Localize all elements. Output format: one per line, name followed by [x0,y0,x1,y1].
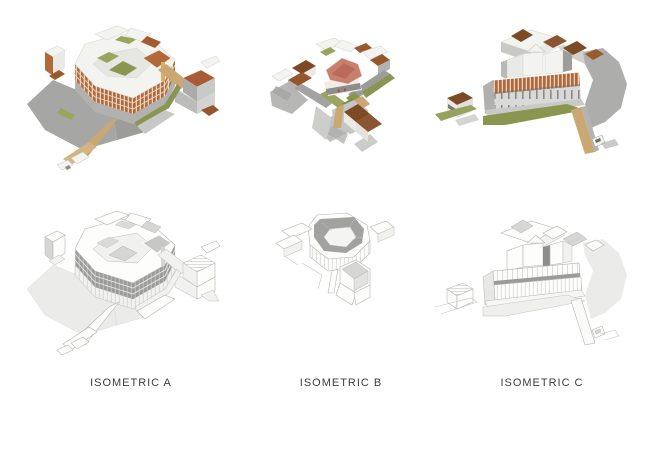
isometric-a-wireframe [25,203,220,358]
left-tower [45,46,65,80]
presentation-sheet: ISOMETRIC A ISOMETRIC B ISOMETRIC C [0,0,650,450]
isometric-b-wireframe-drawing [262,205,412,330]
isometric-c-render [435,12,650,162]
ghost-shadow [583,239,627,319]
isometric-a-render [25,18,220,173]
isometric-c-wireframe-drawing [435,203,650,353]
east-cluster [362,46,390,75]
isometric-c-render-drawing [435,12,650,162]
ring-building [308,213,370,271]
left-tower [45,231,65,265]
isometric-a-wireframe-drawing [25,203,220,358]
caption-isometric-c: ISOMETRIC C [467,376,617,390]
isometric-c-wireframe [435,203,650,353]
caption-isometric-b: ISOMETRIC B [266,376,416,390]
isometric-b-wireframe [262,205,412,330]
west-blocks [276,223,312,257]
isometric-a-render-drawing [25,18,220,173]
east-blocks [370,221,394,242]
left-annex [447,283,473,309]
caption-isometric-a: ISOMETRIC A [56,376,206,390]
isometric-b-render-drawing [258,30,423,162]
south-wing [336,260,370,305]
central-building [324,58,362,96]
isometric-b-render [258,30,423,162]
